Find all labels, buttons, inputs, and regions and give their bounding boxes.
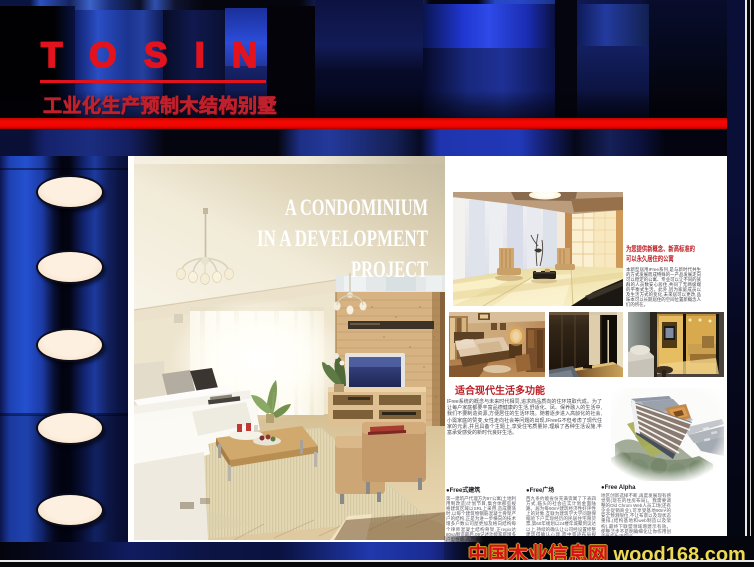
svg-text:PROJECT: PROJECT [351, 257, 428, 282]
svg-text:A CONDOMINIUM: A CONDOMINIUM [285, 195, 428, 220]
svg-text:IN A DEVELOPMENT: IN A DEVELOPMENT [257, 226, 428, 251]
